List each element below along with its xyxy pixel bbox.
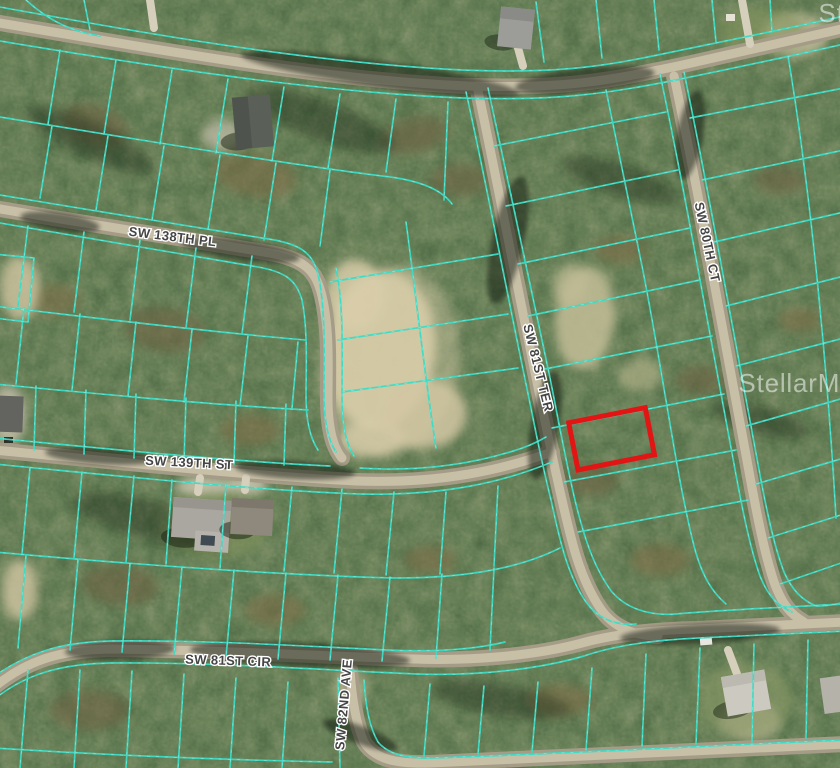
aerial-parcel-map: SW 138TH PL SW 139TH ST SW 81ST CIR SW 8… bbox=[0, 0, 840, 768]
house-left-edge bbox=[0, 395, 24, 432]
stellar-mls-watermark: StellarMLS bbox=[738, 368, 840, 398]
shed-top-right bbox=[726, 14, 735, 21]
stellar-mls-watermark-corner: StellarMLS bbox=[818, 0, 840, 28]
aerial-imagery: SW 138TH PL SW 139TH ST SW 81ST CIR SW 8… bbox=[0, 0, 840, 768]
street-label-sw-81st-cir: SW 81ST CIR bbox=[185, 652, 272, 670]
